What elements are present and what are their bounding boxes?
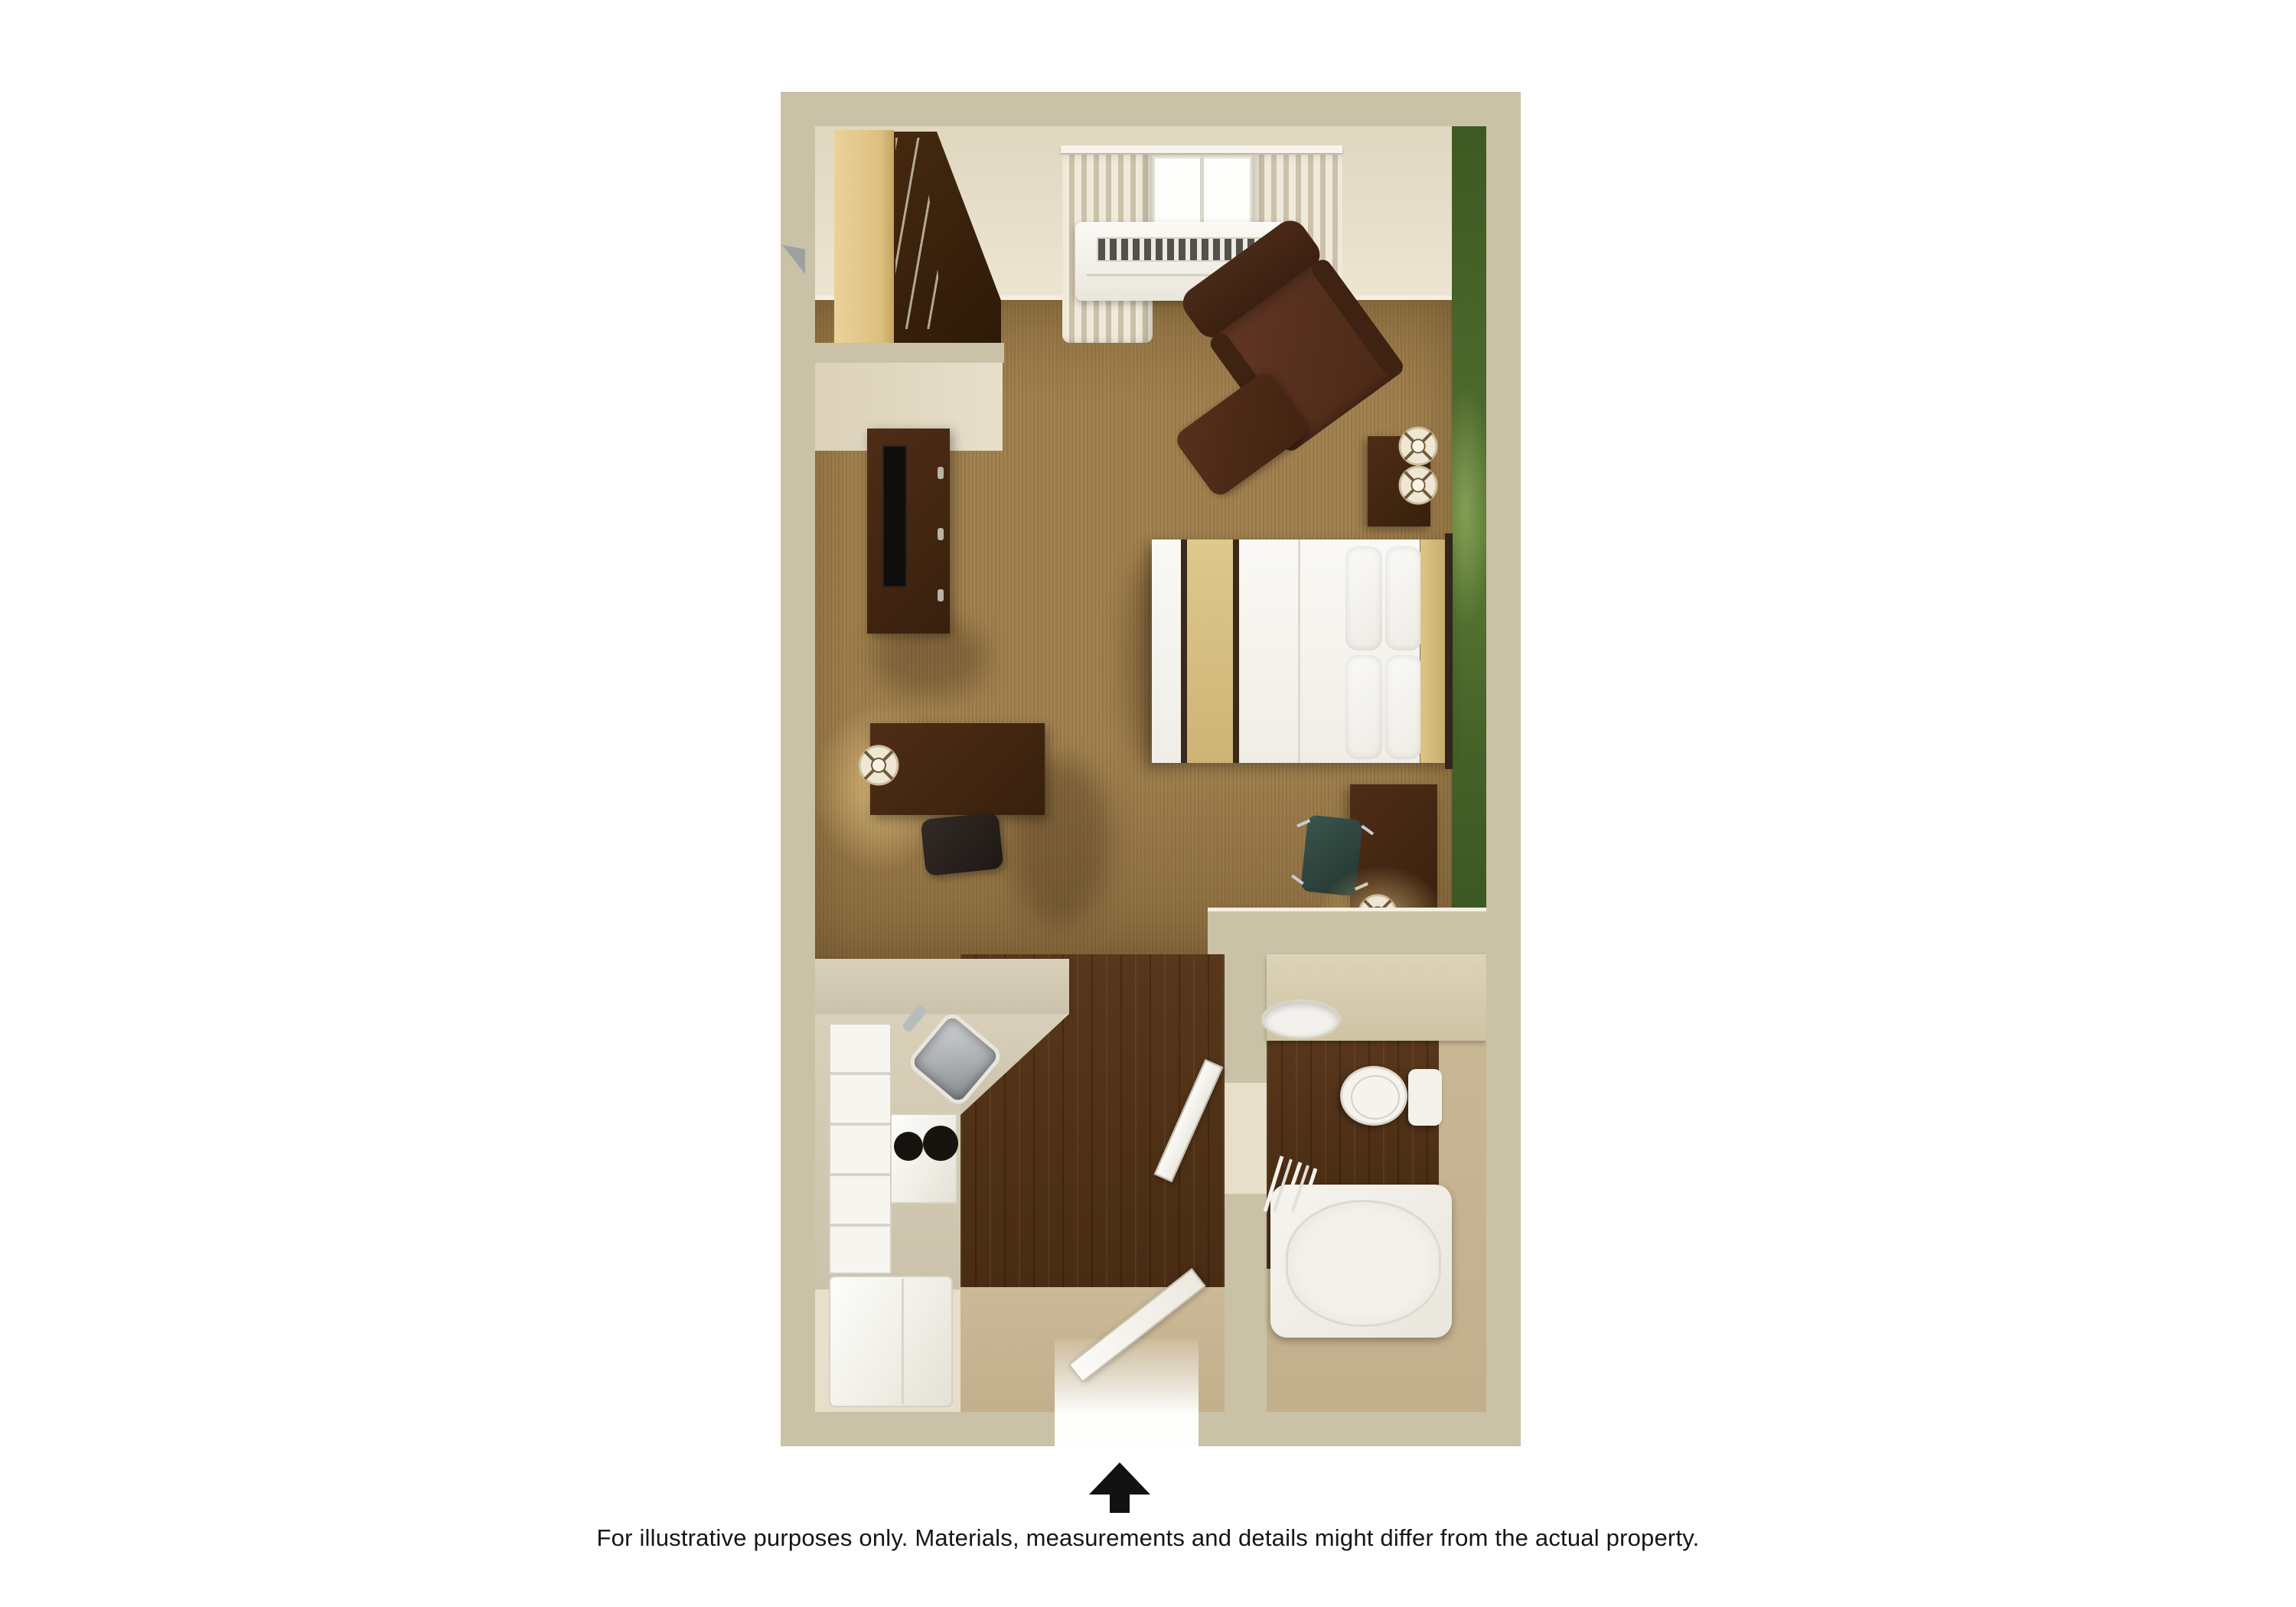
sheet-fold (1298, 539, 1300, 763)
dresser-handle (938, 467, 944, 479)
outer-wall-top (781, 92, 1521, 126)
floor-plan-page: For illustrative purposes only. Material… (0, 0, 2296, 1607)
bed-runner-khaki (1187, 539, 1233, 763)
bath-wall-horizontal (1208, 911, 1486, 954)
pillow (1345, 546, 1382, 650)
desk-lamp-icon (858, 745, 899, 786)
cabinet-drawers (829, 1023, 892, 1274)
headboard (1420, 539, 1445, 763)
office-chair (920, 812, 1003, 876)
tv-icon (882, 445, 907, 588)
pillow (1385, 546, 1422, 650)
bathtub-basin (1286, 1200, 1441, 1327)
pillow (1345, 655, 1382, 759)
refrigerator (829, 1276, 953, 1407)
pillow (1385, 655, 1422, 759)
table-lamp-icon (1398, 426, 1438, 466)
table-lamp-icon (1398, 465, 1438, 505)
entry-doorway-gap (1055, 1412, 1199, 1446)
refrigerator-seam (902, 1279, 904, 1404)
dresser-handle (938, 589, 944, 601)
closet-wall-stub (796, 343, 1004, 363)
kitchen-counter-top (815, 959, 1069, 1014)
curtain-rod (1061, 145, 1342, 153)
bath-wall-vertical-upper (1225, 954, 1267, 1083)
stove-burner-icon (894, 1132, 923, 1161)
stove-burner-icon (923, 1126, 958, 1161)
disclaimer-caption: For illustrative purposes only. Material… (0, 1524, 2296, 1552)
floor-plan (781, 92, 1521, 1446)
toilet-tank (1408, 1069, 1442, 1126)
bed-stripe-dark (1181, 539, 1187, 763)
bed-stripe-dark (1233, 539, 1239, 763)
outer-wall-left (781, 92, 815, 1446)
bath-wall-vertical-lower (1225, 1194, 1267, 1412)
task-chair-arm-icon (1361, 825, 1374, 836)
closet-wood-panel (834, 130, 894, 344)
shower-curtain-icon (1259, 1152, 1328, 1213)
bed (1152, 539, 1453, 763)
north-arrow-icon (1089, 1462, 1150, 1495)
outer-wall-right (1486, 92, 1521, 1446)
north-arrow-stem (1110, 1493, 1130, 1513)
bed-frame (1445, 533, 1453, 769)
vanity-sink-icon (1261, 999, 1341, 1039)
dresser-handle (938, 528, 944, 540)
toilet-seat-line (1351, 1075, 1400, 1120)
